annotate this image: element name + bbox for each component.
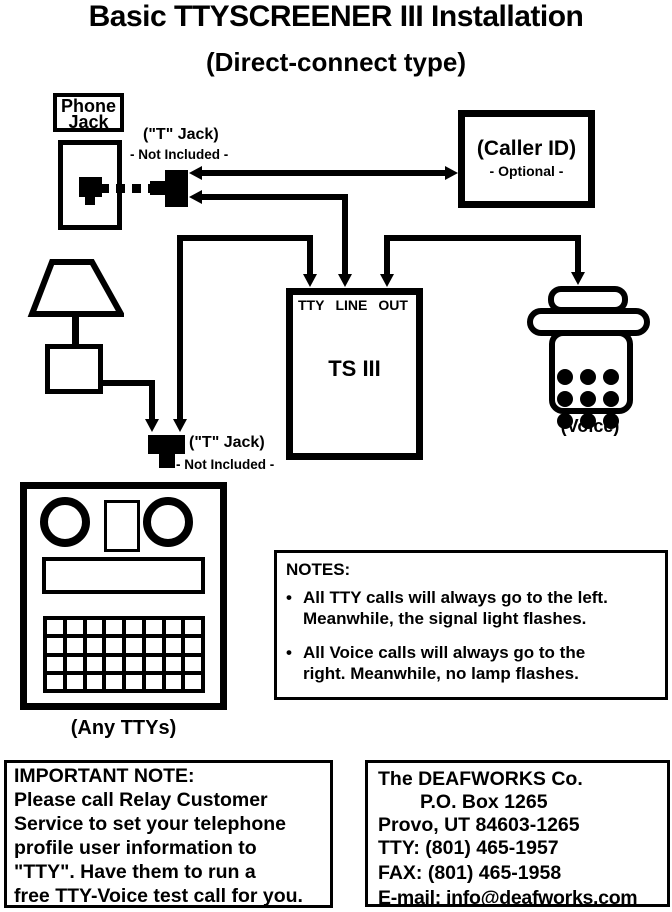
company-email: E-mail: info@deafworks.com bbox=[378, 887, 667, 910]
t-jack-top-icon bbox=[165, 170, 188, 207]
note-item: • All Voice calls will always go to the … bbox=[286, 642, 657, 684]
wire-tty-h bbox=[177, 235, 313, 241]
company-name: The DEAFWORKS Co. bbox=[378, 768, 667, 791]
important-note-text: IMPORTANT NOTE: Please call Relay Custom… bbox=[14, 764, 324, 908]
jack-socket-tab-icon bbox=[85, 197, 95, 205]
phone-jack-label-box: Phone Jack bbox=[53, 93, 124, 132]
arrowhead-down-icon bbox=[173, 419, 187, 432]
ts3-name: TS III bbox=[286, 356, 423, 382]
ts3-port-line-label: LINE bbox=[335, 297, 367, 313]
page-title: Basic TTYSCREENER III Installation bbox=[0, 0, 672, 34]
arrowhead-down-icon bbox=[571, 272, 585, 285]
wire-lamp-v bbox=[149, 380, 155, 421]
arrowhead-left-icon bbox=[189, 166, 202, 180]
note-item: • All TTY calls will always go to the le… bbox=[286, 587, 657, 629]
lamp-base-icon bbox=[45, 344, 103, 394]
wire-tty-port-v bbox=[307, 240, 313, 276]
caller-id-box: (Caller ID) - Optional - bbox=[458, 110, 595, 208]
wire-tjack-line-v bbox=[342, 194, 348, 278]
arrowhead-down-icon bbox=[338, 274, 352, 287]
ts3-port-tty-label: TTY bbox=[298, 297, 324, 313]
tty-coupler-right-icon bbox=[143, 497, 193, 547]
wire-tjack-line-h bbox=[196, 194, 346, 200]
t-jack-top-label: ("T" Jack) bbox=[143, 126, 219, 144]
company-city: Provo, UT 84603-1265 bbox=[378, 814, 667, 837]
t-jack-bottom-sublabel: - Not Included - bbox=[176, 457, 274, 472]
tty-display-icon bbox=[42, 557, 205, 594]
caller-id-title: (Caller ID) bbox=[465, 137, 588, 161]
company-fax: FAX: (801) 465-1958 bbox=[378, 862, 667, 885]
note-text: All Voice calls will always go to the ri… bbox=[303, 642, 585, 684]
phone-keypad-icon bbox=[557, 369, 619, 429]
bullet-icon: • bbox=[286, 587, 303, 629]
arrowhead-down-icon bbox=[145, 419, 159, 432]
company-box: The DEAFWORKS Co. P.O. Box 1265 Provo, U… bbox=[365, 760, 670, 907]
t-jack-bottom-icon bbox=[148, 435, 185, 454]
caller-id-subtitle: - Optional - bbox=[465, 163, 588, 179]
arrowhead-right-icon bbox=[445, 166, 458, 180]
t-jack-top-stem-icon bbox=[150, 181, 166, 195]
t-jack-top-sublabel: - Not Included - bbox=[130, 147, 228, 162]
wire-lamp-h bbox=[100, 380, 155, 386]
ts3-ports-row: TTY LINE OUT bbox=[293, 297, 408, 313]
phone-cradle-icon bbox=[527, 308, 650, 336]
arrowhead-left-icon bbox=[189, 190, 202, 204]
important-note-box: IMPORTANT NOTE: Please call Relay Custom… bbox=[4, 760, 333, 908]
lamp-stem-icon bbox=[72, 314, 79, 345]
note-text: All TTY calls will always go to the left… bbox=[303, 587, 608, 629]
wire-tjack-callerid bbox=[196, 170, 448, 176]
arrowhead-down-icon bbox=[303, 274, 317, 287]
bullet-icon: • bbox=[286, 642, 303, 684]
notes-heading: NOTES: bbox=[286, 560, 657, 580]
tty-coupler-left-icon bbox=[40, 497, 90, 547]
ts3-port-out-label: OUT bbox=[378, 297, 408, 313]
company-po-box: P.O. Box 1265 bbox=[378, 791, 667, 814]
t-jack-bottom-label: ("T" Jack) bbox=[189, 434, 265, 452]
company-tty-phone: TTY: (801) 465-1957 bbox=[378, 837, 667, 860]
t-jack-bottom-stem-icon bbox=[159, 454, 175, 468]
wire-out-port-v bbox=[384, 240, 390, 276]
wire-tty-long-v bbox=[177, 235, 183, 421]
tty-center-slot-icon bbox=[104, 500, 140, 552]
phone-jack-label: Phone Jack bbox=[61, 96, 116, 132]
lamp-shade-icon bbox=[27, 259, 124, 317]
wire-out-phone-v bbox=[575, 235, 581, 275]
page-subtitle: (Direct-connect type) bbox=[0, 47, 672, 78]
jack-socket-icon bbox=[79, 177, 102, 197]
arrowhead-down-icon bbox=[380, 274, 394, 287]
tty-keyboard-icon bbox=[43, 616, 205, 693]
tty-device-label: (Any TTYs) bbox=[20, 717, 227, 740]
installation-diagram: Basic TTYSCREENER III Installation (Dire… bbox=[0, 0, 672, 912]
wire-out-h bbox=[384, 235, 581, 241]
notes-box: NOTES: • All TTY calls will always go to… bbox=[274, 550, 668, 700]
